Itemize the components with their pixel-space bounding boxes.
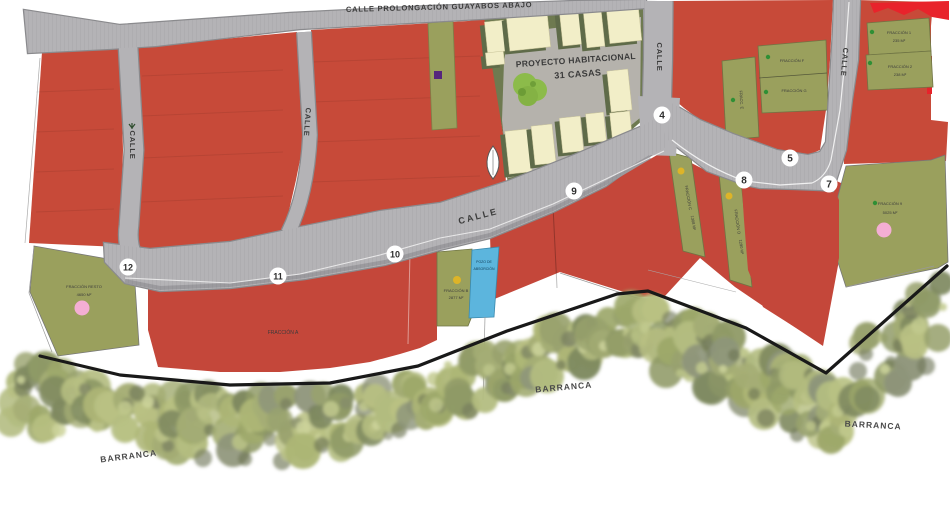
- svg-text:FRACCIÓN A: FRACCIÓN A: [268, 329, 299, 336]
- svg-text:FRACCIÓN 1: FRACCIÓN 1: [887, 30, 912, 35]
- svg-text:CALLE: CALLE: [128, 131, 137, 160]
- svg-text:12: 12: [123, 262, 133, 272]
- svg-text:FRACCIÓN B: FRACCIÓN B: [444, 288, 469, 293]
- svg-text:FRACCIÓN RESTO: FRACCIÓN RESTO: [66, 284, 102, 289]
- svg-text:9: 9: [571, 186, 577, 197]
- svg-text:235 M²: 235 M²: [893, 38, 906, 43]
- svg-text:4: 4: [659, 110, 665, 121]
- svg-text:CALLE: CALLE: [655, 43, 664, 72]
- svg-text:10: 10: [390, 249, 400, 259]
- svg-text:FRACCIÓN 9: FRACCIÓN 9: [878, 201, 903, 206]
- svg-text:11: 11: [273, 271, 283, 281]
- svg-text:4650 M²: 4650 M²: [77, 292, 92, 297]
- svg-text:FRACCIÓN 2: FRACCIÓN 2: [888, 64, 913, 69]
- svg-text:FRACCIÓN F: FRACCIÓN F: [780, 58, 805, 63]
- svg-text:2877 M²: 2877 M²: [449, 295, 464, 300]
- svg-text:7: 7: [826, 179, 832, 190]
- svg-text:5: 5: [787, 153, 793, 164]
- svg-text:8: 8: [741, 175, 747, 186]
- svg-text:FRACCIÓN G: FRACCIÓN G: [781, 88, 806, 93]
- svg-text:238 M²: 238 M²: [894, 72, 907, 77]
- svg-text:ABSORCIÓN: ABSORCIÓN: [473, 266, 494, 271]
- svg-text:5025 M²: 5025 M²: [883, 210, 898, 215]
- svg-text:POZO DE: POZO DE: [476, 260, 492, 264]
